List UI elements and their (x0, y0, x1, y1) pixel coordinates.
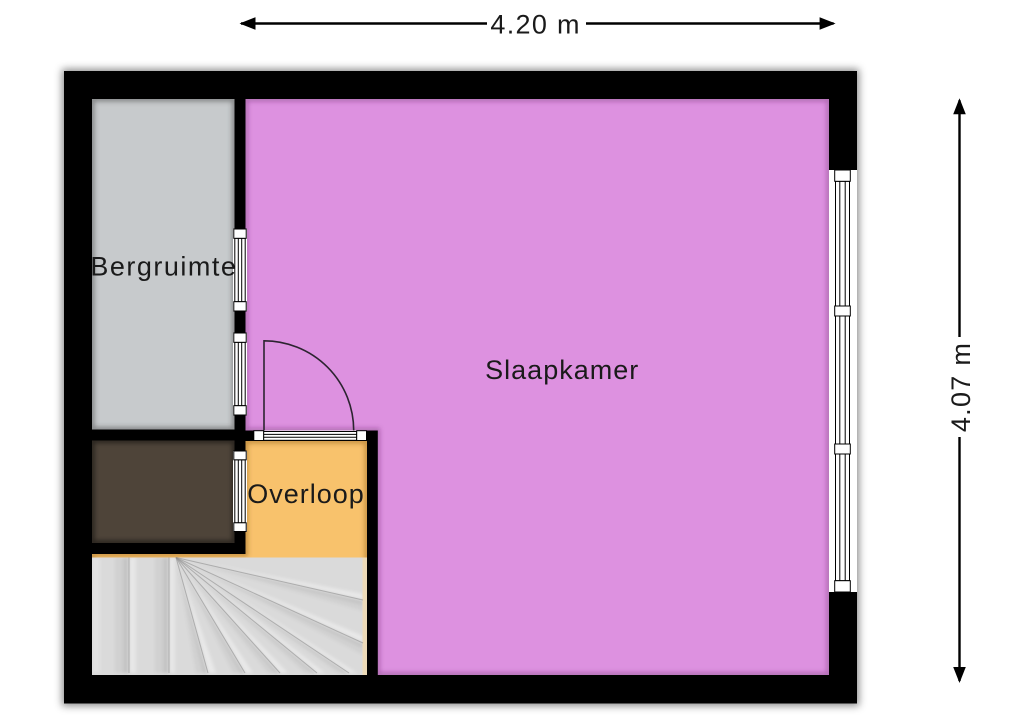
svg-text:Slaapkamer: Slaapkamer (485, 355, 639, 385)
svg-text:4.07 m: 4.07 m (946, 342, 976, 432)
svg-text:4.20 m: 4.20 m (490, 10, 580, 40)
svg-text:Bergruimte: Bergruimte (90, 252, 237, 282)
svg-text:Overloop: Overloop (247, 479, 365, 509)
